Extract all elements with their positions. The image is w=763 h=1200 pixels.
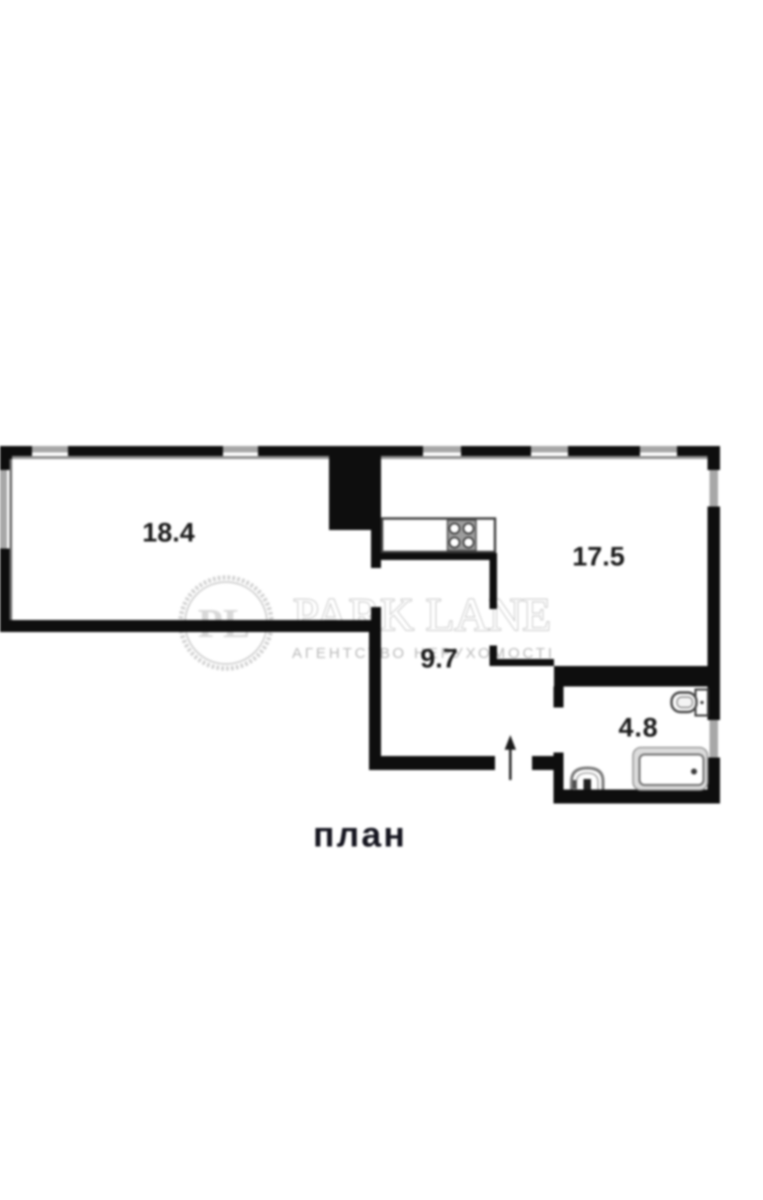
svg-text:9.7: 9.7	[420, 644, 458, 674]
svg-text:17.5: 17.5	[572, 542, 625, 572]
svg-text:18.4: 18.4	[142, 518, 195, 548]
svg-text:4.8: 4.8	[619, 713, 659, 743]
svg-text:PARK LANE: PARK LANE	[293, 589, 551, 641]
svg-text:план: план	[313, 815, 407, 855]
